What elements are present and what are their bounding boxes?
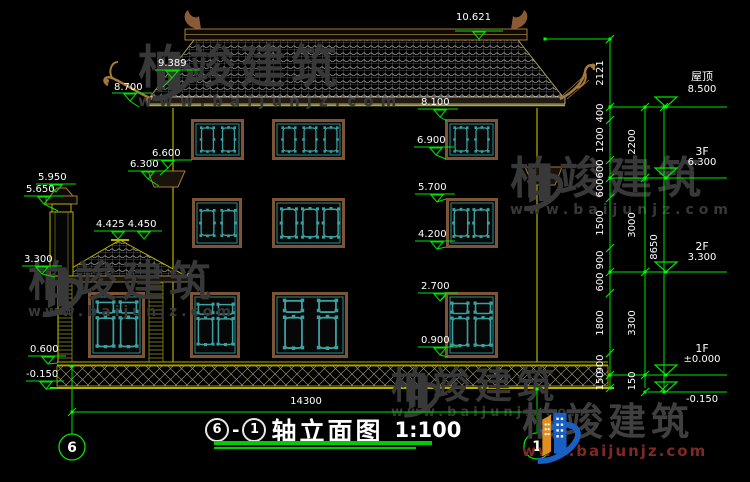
dimension-dots [71, 38, 668, 414]
title-axis-circle-start: 6 [205, 418, 229, 442]
level-floor: 屋顶 [676, 71, 728, 82]
dim-segment: 150 [596, 359, 606, 403]
title-dash: - [232, 420, 239, 441]
elevation-label-hip: 9.389 [158, 59, 187, 69]
label-triangles [36, 32, 485, 389]
elevation-label-ridge: 10.621 [456, 13, 491, 23]
dim-segment: 600 [596, 260, 606, 304]
elevation-label-win3-sill: 6.900 [417, 136, 446, 146]
title-underline-thick [214, 441, 432, 445]
dimension-ticks [68, 35, 668, 416]
dim-segment: 2200 [628, 120, 638, 164]
cad-elevation-screenshot: 柏竣建筑 www.baijunjz.com 柏竣建筑 www.baijunjz.… [0, 0, 750, 482]
level-value: ±0.000 [674, 355, 730, 365]
dim-segment: 3300 [628, 301, 638, 345]
elevation-label-eave-tip: 8.700 [114, 83, 143, 93]
title-scale: 1:100 [395, 418, 462, 442]
elevation-label-canopy-eave: 6.300 [130, 160, 159, 170]
elevation-label-win1-sill: 0.900 [421, 336, 450, 346]
dim-segment: 3000 [628, 203, 638, 247]
elevation-label-wing-ridge: 4.425 4.450 [96, 220, 156, 230]
elevation-label-win3-top: 8.100 [421, 98, 450, 108]
brand-logo-icon [522, 404, 584, 470]
elevation-label-chimney-top: 5.950 [38, 173, 67, 183]
level-value: 3.300 [674, 253, 730, 263]
elevation-label-win2-top: 5.700 [418, 183, 447, 193]
dim-segment: 8650 [650, 225, 660, 269]
title-axis-circle-end: 1 [242, 418, 266, 442]
elevation-label-win1-top: 2.700 [421, 282, 450, 292]
overall-width-dimension: 14300 [283, 397, 329, 407]
level-floor: 1F [676, 343, 728, 354]
dim-segment: 1800 [596, 301, 606, 345]
dim-segment: 150 [628, 359, 638, 403]
elevation-label-chimney-cap: 5.650 [26, 185, 55, 195]
elevation-label-win2-sill: 4.200 [418, 230, 447, 240]
axis-bubble-label-6: 6 [62, 440, 82, 456]
elevation-label-wing-eave: 3.300 [24, 255, 53, 265]
level-value: 6.300 [674, 158, 730, 168]
elevation-label-plinth: 0.600 [30, 345, 59, 355]
level-floor: 3F [676, 146, 728, 157]
elevation-label-canopy-top: 6.600 [152, 149, 181, 159]
level-floor: 2F [676, 241, 728, 252]
elevation-label-ground-left: -0.150 [26, 370, 58, 380]
title-underline-thin [214, 447, 416, 449]
dim-segment: 2121 [596, 51, 606, 95]
watermark-colored: 柏竣建筑 www.baijunjz.com [522, 404, 707, 460]
level-value: 8.500 [674, 85, 730, 95]
